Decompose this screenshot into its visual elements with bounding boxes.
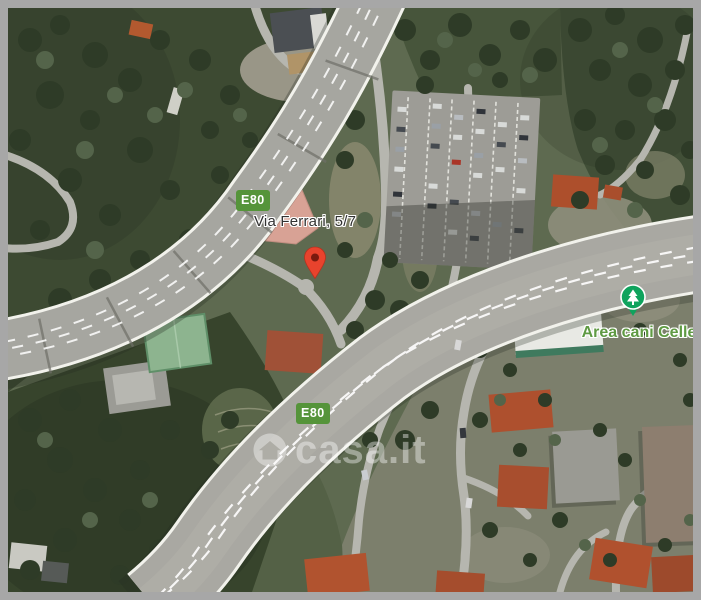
address-label: Via Ferrari, 5/7	[254, 213, 356, 230]
location-pin-icon[interactable]	[303, 246, 327, 280]
photo-frame: E80 Via Ferrari, 5/7 E80 Area cani Celle…	[0, 0, 701, 600]
park-poi-label[interactable]: Area cani Celle	[564, 324, 693, 342]
map-canvas[interactable]: E80 Via Ferrari, 5/7 E80 Area cani Celle…	[8, 8, 693, 592]
pin-body	[305, 247, 326, 279]
route-badge-e80-top: E80	[236, 190, 270, 211]
tree-trunk	[632, 302, 634, 306]
route-badge-e80-bottom: E80	[296, 403, 330, 424]
pin-dot	[311, 254, 319, 262]
park-tree-icon[interactable]	[619, 284, 647, 318]
satellite-imagery	[8, 8, 693, 592]
